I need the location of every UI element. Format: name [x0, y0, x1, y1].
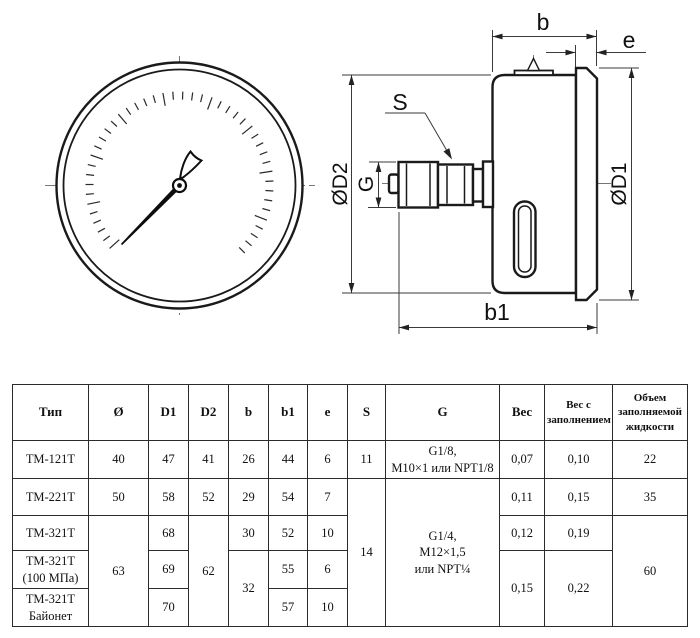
col-header-d2: D2: [189, 385, 229, 441]
fitting-base-ring: [483, 162, 493, 208]
page: b e S G ØD2 ØD1 b1 Тип Ø D1 D2 b b1 e S …: [0, 0, 700, 638]
col-header-fill-volume: Объем заполняемой жидкости: [613, 385, 688, 441]
cell-diameter: 50: [89, 479, 149, 516]
technical-drawing: b e S G ØD2 ØD1 b1: [0, 0, 700, 384]
cell-type: ТМ-321Т (100 МПа): [13, 551, 89, 589]
cell-weight-filled: 0,19: [545, 516, 613, 551]
table-row: ТМ-121Т 40 47 41 26 44 6 11 G1/8, M10×1 …: [13, 441, 688, 479]
cell-type: ТМ-221Т: [13, 479, 89, 516]
cell-fill-volume: 60: [613, 516, 688, 627]
cell-b: 29: [229, 479, 269, 516]
fitting: [389, 162, 493, 208]
fitting-collar: [473, 169, 483, 202]
cell-g: G1/4, M12×1,5 или NPT¼: [386, 479, 500, 627]
cell-e: 7: [308, 479, 348, 516]
dim-label-d1: ØD1: [608, 162, 631, 205]
bezel-ring: [576, 68, 597, 300]
cell-e: 6: [308, 441, 348, 479]
fitting-tip: [389, 175, 399, 194]
cell-weight-filled: 0,22: [545, 551, 613, 627]
s-leader-line: [425, 113, 450, 156]
gauge-side-view: [382, 55, 614, 300]
cell-b1: 55: [269, 551, 308, 589]
cell-b: 32: [229, 551, 269, 627]
cell-d1: 68: [149, 516, 189, 551]
col-header-type: Тип: [13, 385, 89, 441]
gauge-front-view: [45, 56, 315, 315]
cell-fill-volume: 35: [613, 479, 688, 516]
col-header-s: S: [348, 385, 386, 441]
cell-e: 6: [308, 551, 348, 589]
cell-weight: 0,15: [500, 551, 545, 627]
cell-diameter: 63: [89, 516, 149, 627]
fitting-knob: [399, 162, 439, 208]
dim-label-g: G: [355, 176, 378, 192]
col-header-weight-filled: Вес с заполнением: [545, 385, 613, 441]
cell-weight: 0,07: [500, 441, 545, 479]
fitting-hex-nut: [438, 165, 473, 206]
cell-e: 10: [308, 516, 348, 551]
cell-g: G1/8, M10×1 или NPT1/8: [386, 441, 500, 479]
table-row: ТМ-221Т 50 58 52 29 54 7 14 G1/4, M12×1,…: [13, 479, 688, 516]
col-header-b1: b1: [269, 385, 308, 441]
cell-s: 14: [348, 479, 386, 627]
dim-label-b: b: [537, 9, 550, 35]
col-header-d1: D1: [149, 385, 189, 441]
col-header-weight: Вес: [500, 385, 545, 441]
cell-s: 11: [348, 441, 386, 479]
cell-d1: 70: [149, 589, 189, 627]
cell-type: ТМ-321Т Байонет: [13, 589, 89, 627]
cell-d1: 69: [149, 551, 189, 589]
needle-hub-dot: [177, 183, 182, 188]
cell-type: ТМ-121Т: [13, 441, 89, 479]
dim-label-e: e: [623, 27, 636, 53]
fill-plug-triangle: [528, 59, 540, 71]
cell-b1: 54: [269, 479, 308, 516]
dim-label-s: S: [392, 89, 407, 115]
col-header-g: G: [386, 385, 500, 441]
cell-b1: 52: [269, 516, 308, 551]
cell-weight-filled: 0,10: [545, 441, 613, 479]
cell-d2: 62: [189, 516, 229, 627]
cell-fill-volume: 22: [613, 441, 688, 479]
cell-b1: 57: [269, 589, 308, 627]
cell-type: ТМ-321Т: [13, 516, 89, 551]
cell-weight: 0,11: [500, 479, 545, 516]
spec-table: Тип Ø D1 D2 b b1 e S G Вес Вес с заполне…: [12, 384, 688, 627]
dim-label-b1: b1: [484, 299, 510, 325]
dim-label-d2: ØD2: [329, 162, 352, 205]
s-leader-arrowhead: [444, 148, 453, 159]
col-header-diameter: Ø: [89, 385, 149, 441]
cell-d1: 58: [149, 479, 189, 516]
cell-weight: 0,12: [500, 516, 545, 551]
cell-b: 30: [229, 516, 269, 551]
cell-d1: 47: [149, 441, 189, 479]
cell-d2: 52: [189, 479, 229, 516]
col-header-b: b: [229, 385, 269, 441]
header-row: Тип Ø D1 D2 b b1 e S G Вес Вес с заполне…: [13, 385, 688, 441]
cell-d2: 41: [189, 441, 229, 479]
cell-weight-filled: 0,15: [545, 479, 613, 516]
cell-e: 10: [308, 589, 348, 627]
cell-b1: 44: [269, 441, 308, 479]
col-header-e: e: [308, 385, 348, 441]
slot-window-outer: [514, 202, 536, 278]
cell-diameter: 40: [89, 441, 149, 479]
cell-b: 26: [229, 441, 269, 479]
